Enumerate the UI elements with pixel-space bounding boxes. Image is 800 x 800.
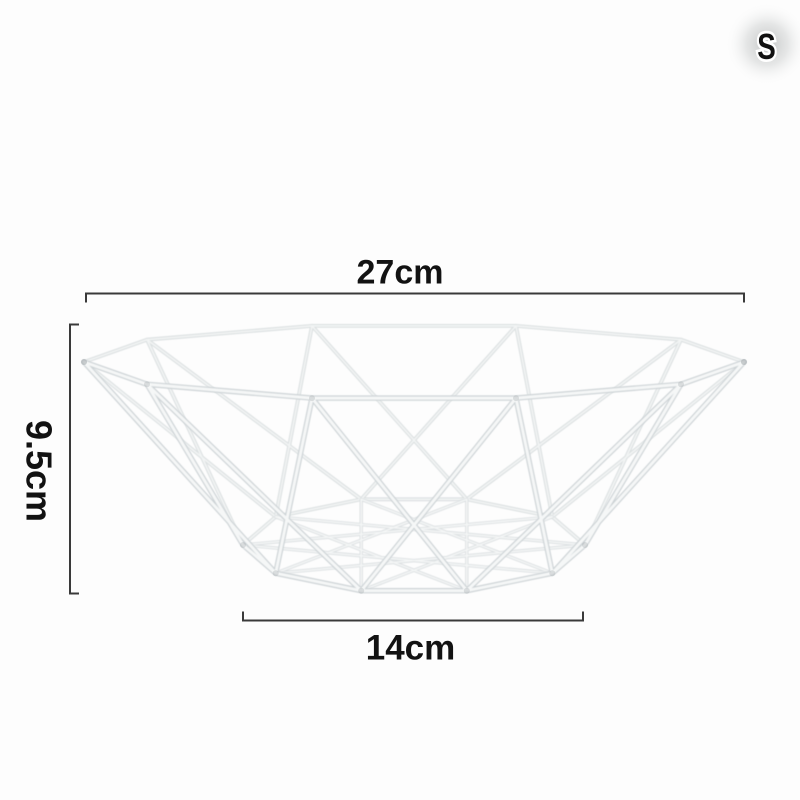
svg-text:S: S (757, 26, 776, 67)
svg-text:27cm: 27cm (357, 254, 444, 292)
svg-text:14cm: 14cm (366, 629, 456, 668)
svg-text:9.5cm: 9.5cm (19, 420, 60, 522)
